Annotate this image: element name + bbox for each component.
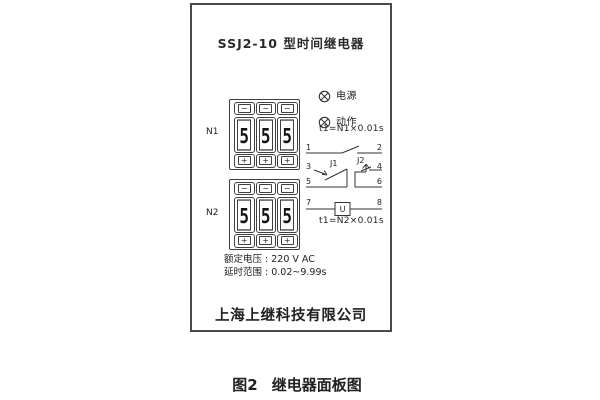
minus-icon: − — [259, 184, 272, 193]
increment-button: + — [234, 154, 255, 168]
wheel-column: − 5 + — [277, 102, 298, 168]
lamp-icon — [318, 88, 331, 101]
increment-button: + — [256, 234, 277, 248]
decrement-button: − — [277, 182, 298, 196]
specs: 额定电压 : 220 V AC 延时范围 : 0.02~9.99s — [224, 254, 326, 279]
panel-title: SSJ2-10 型时间继电器 — [192, 33, 390, 52]
thumbwheel-n1: − 5 + − 5 + − 5 + — [229, 99, 300, 170]
wheel-label-n2: N2 — [206, 208, 228, 218]
increment-button: + — [256, 154, 277, 168]
plus-icon: + — [281, 156, 294, 165]
terminal-3: 3 — [306, 162, 311, 171]
increment-button: + — [234, 234, 255, 248]
minus-icon: − — [238, 104, 251, 113]
decrement-button: − — [277, 102, 298, 116]
digit-window: 5 — [234, 117, 255, 153]
digit-window: 5 — [277, 197, 298, 233]
digit-value: 5 — [259, 119, 273, 150]
decrement-button: − — [256, 102, 277, 116]
decrement-button: − — [234, 182, 255, 196]
plus-icon: + — [238, 236, 251, 245]
delay-contact-j1-icon — [306, 169, 347, 187]
formula-n1: t1=N1×0.01s — [319, 124, 384, 134]
contact-label-j2: J2 — [356, 156, 364, 165]
relay-panel: SSJ2-10 型时间继电器 电源 动作 — [190, 3, 392, 332]
terminal-6: 6 — [377, 177, 382, 186]
coil-label: U — [340, 205, 346, 214]
digit-window: 5 — [256, 117, 277, 153]
caption-number: 图2 — [232, 376, 257, 394]
digit-value: 5 — [280, 119, 294, 150]
digit-value: 5 — [237, 199, 251, 230]
minus-icon: − — [281, 184, 294, 193]
thumbwheel-n2: − 5 + − 5 + − 5 + — [229, 179, 300, 250]
digit-value: 5 — [259, 199, 273, 230]
contact-label-j1: J1 — [329, 159, 337, 168]
company-name: 上海上继科技有限公司 — [192, 304, 390, 325]
digit-value: 5 — [280, 199, 294, 230]
decrement-button: − — [256, 182, 277, 196]
wheel-column: − 5 + — [256, 102, 277, 168]
digit-window: 5 — [277, 117, 298, 153]
plus-icon: + — [238, 156, 251, 165]
terminal-1: 1 — [306, 143, 311, 152]
wheel-column: − 5 + — [277, 182, 298, 248]
digit-window: 5 — [256, 197, 277, 233]
wheel-label-n1: N1 — [206, 127, 228, 137]
terminal-2: 2 — [377, 143, 382, 152]
increment-button: + — [277, 234, 298, 248]
wheel-column: − 5 + — [256, 182, 277, 248]
wheel-column: − 5 + — [234, 182, 255, 248]
indicator-label-power: 电源 — [336, 87, 357, 102]
contact-schematic: 1 2 3 4 J1 J2 5 6 7 8 U — [302, 139, 386, 217]
plus-icon: + — [259, 156, 272, 165]
figure-page: SSJ2-10 型时间继电器 电源 动作 — [0, 0, 600, 400]
power-indicator: 电源 — [318, 87, 357, 102]
terminal-5: 5 — [306, 177, 311, 186]
terminal-7: 7 — [306, 198, 311, 207]
plus-icon: + — [259, 236, 272, 245]
plus-icon: + — [281, 236, 294, 245]
no-contact-icon — [306, 146, 382, 153]
spec-delay-range: 延时范围 : 0.02~9.99s — [224, 267, 326, 280]
caption-title: 继电器面板图 — [272, 376, 362, 394]
minus-icon: − — [281, 104, 294, 113]
increment-button: + — [277, 154, 298, 168]
minus-icon: − — [238, 184, 251, 193]
formula-n2: t1=N2×0.01s — [319, 216, 384, 226]
wheel-column: − 5 + — [234, 102, 255, 168]
minus-icon: − — [259, 104, 272, 113]
spec-rated-voltage: 额定电压 : 220 V AC — [224, 254, 326, 267]
figure-caption: 图2继电器面板图 — [197, 374, 397, 395]
digit-value: 5 — [237, 119, 251, 150]
terminal-8: 8 — [377, 198, 382, 207]
digit-window: 5 — [234, 197, 255, 233]
decrement-button: − — [234, 102, 255, 116]
arrow-icon — [314, 170, 327, 175]
